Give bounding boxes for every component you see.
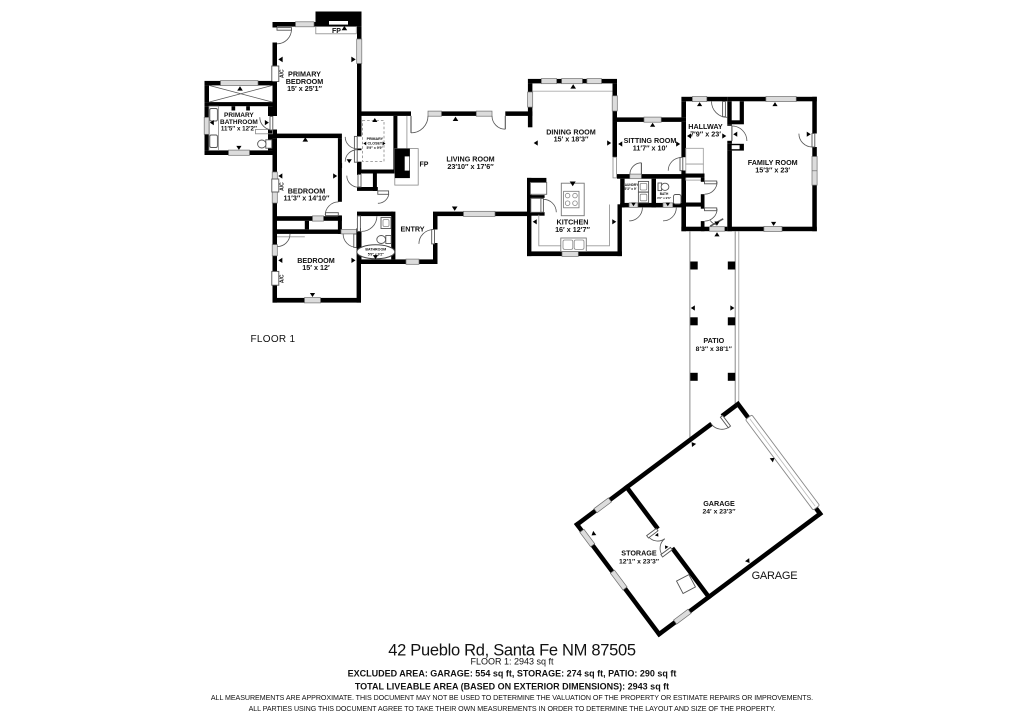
svg-text:15′3″ x 23′: 15′3″ x 23′ bbox=[755, 166, 790, 175]
svg-text:16′ x 12′7″: 16′ x 12′7″ bbox=[555, 225, 590, 234]
svg-text:A/C: A/C bbox=[280, 182, 286, 191]
svg-text:A/C: A/C bbox=[280, 69, 286, 78]
svg-text:A/C: A/C bbox=[280, 274, 286, 283]
svg-text:11′3″ x 14′10″: 11′3″ x 14′10″ bbox=[284, 194, 330, 203]
svg-text:23′10″ x 17′6″: 23′10″ x 17′6″ bbox=[447, 162, 494, 171]
svg-text:5′3″ x 9′: 5′3″ x 9′ bbox=[625, 187, 637, 191]
svg-text:ENTRY: ENTRY bbox=[400, 224, 424, 233]
svg-text:12′1″ x 23′3″: 12′1″ x 23′3″ bbox=[619, 559, 660, 566]
svg-text:15′ x 12′: 15′ x 12′ bbox=[302, 263, 330, 272]
svg-text:GARAGE: GARAGE bbox=[752, 570, 798, 582]
svg-text:4′6″ x 9′6″: 4′6″ x 9′6″ bbox=[657, 196, 672, 200]
svg-text:FLOOR 1: FLOOR 1 bbox=[251, 334, 296, 345]
svg-text:BATHROOM: BATHROOM bbox=[365, 248, 386, 252]
svg-text:CLOSET: CLOSET bbox=[368, 141, 383, 145]
svg-text:PATIO: PATIO bbox=[703, 336, 724, 345]
svg-text:8′3″ x 38′1″: 8′3″ x 38′1″ bbox=[696, 346, 733, 353]
svg-text:TOTAL LIVEABLE AREA (BASED ON: TOTAL LIVEABLE AREA (BASED ON EXTERIOR D… bbox=[355, 682, 669, 692]
svg-text:EXCLUDED AREA: GARAGE: 554 sq: EXCLUDED AREA: GARAGE: 554 sq ft, STORAG… bbox=[348, 669, 677, 679]
svg-text:FLOOR 1: 2943 sq ft: FLOOR 1: 2943 sq ft bbox=[470, 657, 554, 667]
svg-text:24′ x 23′3″: 24′ x 23′3″ bbox=[703, 509, 737, 516]
svg-text:11′5″ x 12′2″: 11′5″ x 12′2″ bbox=[221, 125, 257, 132]
svg-text:15′ x 25′1″: 15′ x 25′1″ bbox=[287, 84, 322, 93]
svg-text:FP: FP bbox=[420, 162, 429, 169]
svg-text:5′9″ x 9′9″: 5′9″ x 9′9″ bbox=[366, 146, 383, 150]
svg-text:15′ x 18′3″: 15′ x 18′3″ bbox=[554, 135, 589, 144]
svg-text:GARAGE: GARAGE bbox=[703, 499, 735, 508]
svg-text:FP: FP bbox=[332, 28, 341, 35]
svg-text:STORAGE: STORAGE bbox=[621, 549, 657, 558]
svg-text:7′9″ x 23′: 7′9″ x 23′ bbox=[690, 130, 721, 139]
svg-text:11′7″ x 10′: 11′7″ x 10′ bbox=[633, 144, 668, 153]
svg-text:ALL MEASUREMENTS ARE APPROXIMA: ALL MEASUREMENTS ARE APPROXIMATE. THIS D… bbox=[211, 694, 813, 702]
svg-text:PRIMARY: PRIMARY bbox=[367, 137, 384, 141]
svg-text:ALL PARTIES USING THIS DOCUMEN: ALL PARTIES USING THIS DOCUMENT AGREE TO… bbox=[249, 705, 776, 713]
